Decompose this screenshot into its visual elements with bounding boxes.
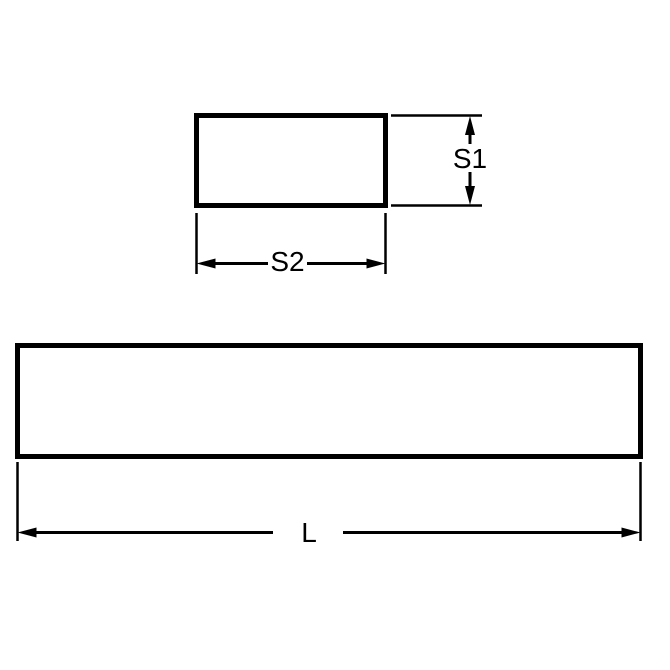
s2-arrowhead-left-icon: [197, 259, 216, 269]
s1-dimension-label: S1: [453, 143, 487, 174]
s2-dimension-label: S2: [270, 246, 304, 277]
technical-drawing-canvas: S1 S2 L: [0, 0, 670, 670]
dimension-diagram: S1 S2 L: [0, 0, 670, 670]
cross-section-rect: [197, 116, 386, 206]
s1-arrowhead-down-icon: [465, 186, 475, 205]
l-arrowhead-left-icon: [18, 528, 37, 538]
side-view-rect: [18, 346, 641, 457]
s1-arrowhead-up-icon: [465, 116, 475, 135]
l-arrowhead-right-icon: [622, 528, 641, 538]
l-dimension-label: L: [301, 517, 317, 548]
s2-arrowhead-right-icon: [367, 259, 386, 269]
